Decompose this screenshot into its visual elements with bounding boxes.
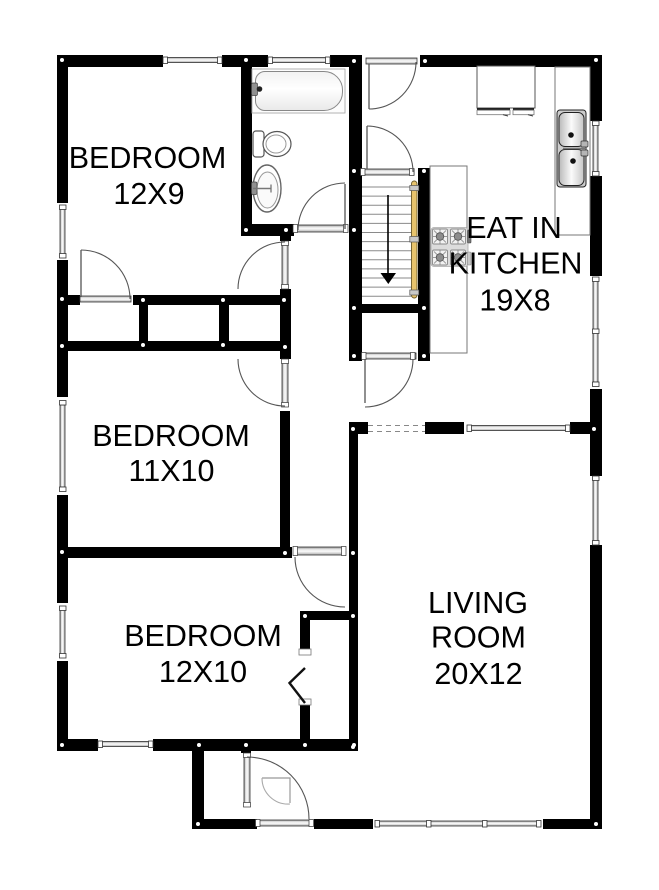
svg-text:ROOM: ROOM (431, 621, 526, 655)
svg-text:BEDROOM: BEDROOM (124, 619, 282, 653)
svg-text:BEDROOM: BEDROOM (69, 141, 227, 175)
svg-text:11X10: 11X10 (129, 454, 215, 488)
svg-text:BEDROOM: BEDROOM (92, 419, 250, 453)
svg-text:12X10: 12X10 (159, 655, 247, 689)
svg-text:19X8: 19X8 (479, 284, 550, 318)
svg-text:20X12: 20X12 (434, 657, 522, 691)
svg-text:12X9: 12X9 (113, 177, 184, 211)
svg-text:LIVING: LIVING (428, 586, 528, 620)
svg-text:EAT IN: EAT IN (466, 211, 561, 245)
svg-text:KITCHEN: KITCHEN (449, 247, 583, 281)
